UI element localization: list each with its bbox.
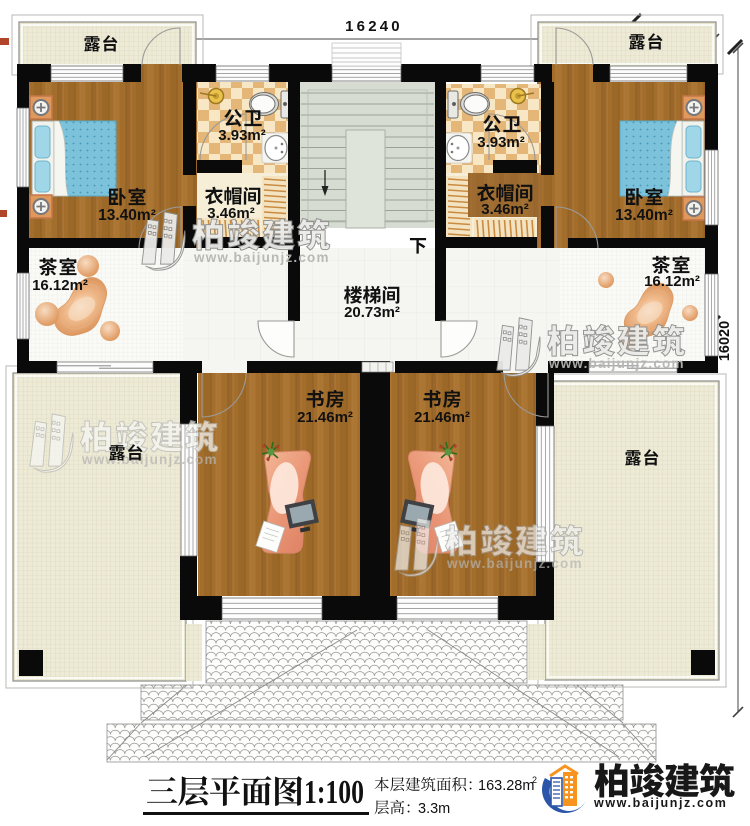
svg-text:20.73m²: 20.73m² (344, 304, 400, 321)
svg-text:2: 2 (532, 775, 537, 785)
svg-text:3.3m: 3.3m (418, 801, 450, 817)
svg-text:3.93m²: 3.93m² (218, 127, 266, 144)
svg-text:3.46m²: 3.46m² (207, 205, 255, 222)
svg-text:13.40m²: 13.40m² (615, 207, 673, 224)
svg-text:www.baijunjz.com: www.baijunjz.com (81, 452, 218, 467)
svg-text:www.baijunjz.com: www.baijunjz.com (548, 356, 685, 371)
svg-text:21.46m²: 21.46m² (297, 409, 353, 426)
svg-text:www.baijunjz.com: www.baijunjz.com (446, 556, 583, 571)
svg-text:3.46m²: 3.46m² (481, 201, 529, 218)
svg-text:1:100: 1:100 (304, 774, 364, 811)
svg-text:www.baijunjz.com: www.baijunjz.com (593, 796, 727, 810)
svg-text:163.28m: 163.28m (478, 778, 534, 794)
svg-text:16.12m²: 16.12m² (644, 273, 700, 290)
svg-text:21.46m²: 21.46m² (414, 409, 470, 426)
svg-text:www.baijunjz.com: www.baijunjz.com (193, 250, 330, 265)
svg-text:13.40m²: 13.40m² (98, 207, 156, 224)
svg-text:3.93m²: 3.93m² (477, 134, 525, 151)
svg-text:16.12m²: 16.12m² (32, 277, 88, 294)
svg-text:16020: 16020 (717, 321, 733, 361)
svg-text:16240: 16240 (345, 18, 403, 35)
